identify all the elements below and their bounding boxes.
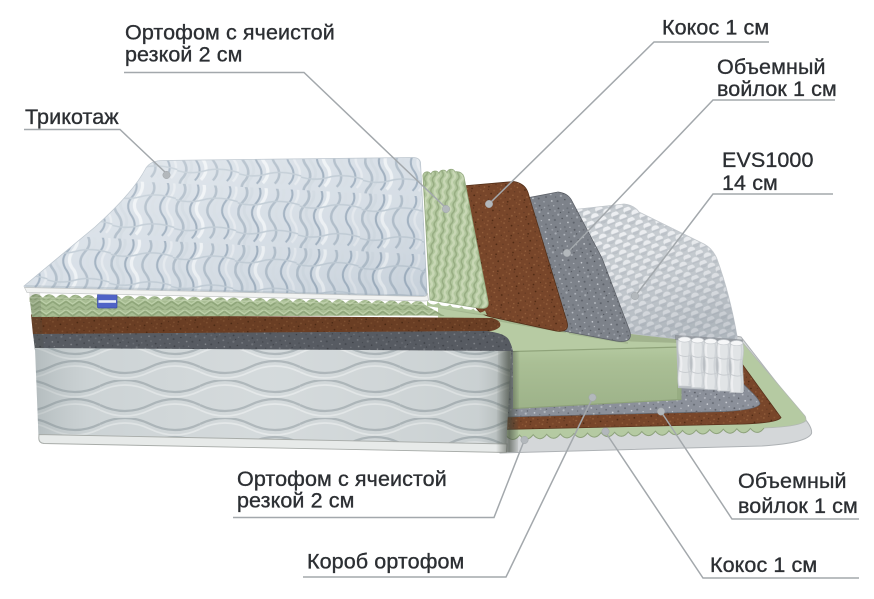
svg-text:Ортофом с ячеистой: Ортофом с ячеистой: [237, 467, 447, 491]
svg-text:резкой 2 см: резкой 2 см: [125, 43, 242, 67]
svg-text:Объемный: Объемный: [717, 55, 826, 79]
svg-text:резкой 2 см: резкой 2 см: [237, 489, 354, 513]
svg-text:Кокос 1 см: Кокос 1 см: [662, 16, 769, 40]
svg-text:Короб ортофом: Короб ортофом: [307, 550, 464, 574]
svg-text:Кокос 1 см: Кокос 1 см: [710, 553, 817, 577]
svg-text:войлок 1 см: войлок 1 см: [717, 77, 837, 101]
svg-text:14 см: 14 см: [722, 171, 778, 195]
svg-text:EVS1000: EVS1000: [722, 148, 814, 172]
svg-text:Трикотаж: Трикотаж: [25, 105, 119, 129]
svg-text:Объемный: Объемный: [738, 469, 847, 493]
svg-text:Ортофом с ячеистой: Ортофом с ячеистой: [125, 21, 335, 45]
svg-text:войлок 1 см: войлок 1 см: [738, 494, 858, 518]
